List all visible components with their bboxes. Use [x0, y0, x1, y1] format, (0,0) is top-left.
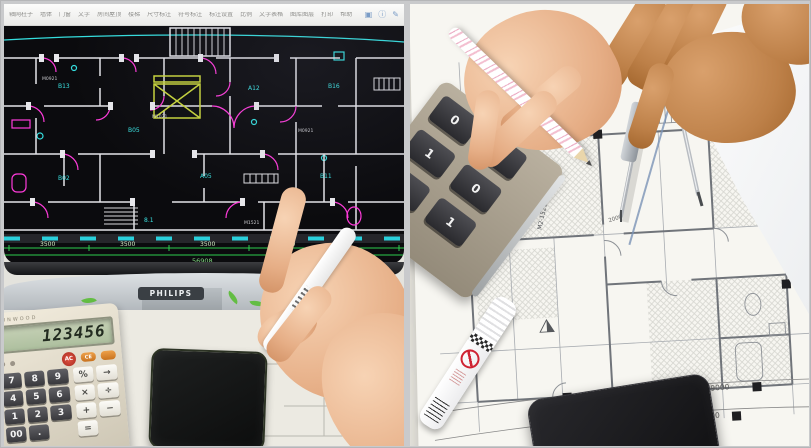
- svg-text:M0921: M0921: [298, 128, 313, 134]
- calc-key: ÷: [98, 382, 120, 399]
- solar-cell: [10, 361, 15, 366]
- cad-menu-item: 门窗: [59, 12, 71, 18]
- calculator: SUNWOOD 123456 AC CE 78945612300. %→×÷+−…: [4, 303, 130, 446]
- calc-key: 5: [26, 388, 47, 405]
- svg-text:B05: B05: [128, 127, 140, 134]
- cad-door-tags: M0921 M1021 M0921 M1521: [42, 76, 313, 226]
- photo-cad-monitor: 轴网柱子墙体门窗文字房间屋顶楼梯尺寸标注符号标注标注设置比例文字表格图库图层打印…: [4, 4, 404, 446]
- calc-key: =: [77, 420, 99, 437]
- smartphone: [148, 348, 267, 446]
- calc-key: 6: [49, 386, 70, 403]
- cad-menu-item: 楼梯: [128, 12, 140, 18]
- calc-key: 2: [27, 406, 48, 423]
- cad-menu-item: 帮助: [340, 12, 352, 18]
- calc-key: −: [99, 400, 121, 417]
- svg-text:M0921: M0921: [42, 76, 57, 82]
- cad-frames: [26, 54, 335, 206]
- cad-rails: [244, 78, 400, 183]
- svg-text:B11: B11: [320, 173, 332, 180]
- workspace-photo-collage: 轴网柱子墙体门窗文字房间屋顶楼梯尺寸标注符号标注标注设置比例文字表格图库图层打印…: [0, 0, 811, 448]
- calculator-keypad: 78945612300. %→×÷+−=: [4, 364, 123, 443]
- calc-key: %: [72, 366, 94, 383]
- cad-menu-item: 墙体: [40, 12, 52, 18]
- cad-elevator: [154, 76, 200, 118]
- calc-key: 7: [4, 372, 22, 389]
- cad-menu-item: 图库图层: [290, 12, 314, 18]
- cad-toolbar: 轴网柱子墙体门窗文字房间屋顶楼梯尺寸标注符号标注标注设置比例文字表格图库图层打印…: [4, 4, 404, 26]
- cad-menu-item: 打印: [321, 12, 333, 18]
- svg-text:A05: A05: [200, 173, 212, 180]
- calculator-display: 123456: [41, 323, 106, 344]
- svg-text:M1021: M1021: [152, 114, 167, 120]
- svg-text:8.1: 8.1: [144, 217, 154, 224]
- cad-menu-item: 文字: [78, 12, 90, 18]
- calc-key: 1: [4, 408, 25, 425]
- cad-menu-list: 轴网柱子墙体门窗文字房间屋顶楼梯尺寸标注符号标注标注设置比例文字表格图库图层打印…: [9, 12, 359, 18]
- calc-operator-keys: %→×÷+−=: [72, 364, 122, 437]
- toolbar-grid-icon: ▣: [365, 11, 373, 19]
- calc-key: 4: [4, 390, 24, 407]
- svg-text:3500: 3500: [40, 241, 55, 248]
- calc-key-orange: [100, 350, 116, 360]
- svg-text:A12: A12: [248, 85, 260, 92]
- cad-cyan-lines: [4, 35, 404, 161]
- svg-text:3500: 3500: [120, 241, 135, 248]
- svg-text:B02: B02: [58, 175, 70, 182]
- calc-key: →: [96, 364, 118, 381]
- cad-menu-item: 比例: [240, 12, 252, 18]
- svg-text:3500: 3500: [200, 241, 215, 248]
- cad-menu-item: 文字表格: [259, 12, 283, 18]
- calc-number-keys: 78945612300.: [4, 368, 73, 443]
- calc-key: 8: [24, 370, 45, 387]
- calc-key: .: [29, 424, 50, 441]
- svg-text:M1521: M1521: [244, 220, 259, 226]
- toolbar-info-icon: ⓘ: [378, 11, 386, 19]
- calc-key: ×: [74, 384, 96, 401]
- photo-blueprint-drafting: 9000 30700 2000 M2-1521B 001041: [410, 4, 809, 446]
- cad-menu-item: 房间屋顶: [97, 12, 121, 18]
- calc-key: 3: [50, 404, 71, 421]
- monitor-brand-label: PHILIPS: [150, 289, 193, 298]
- monitor-brand-badge: PHILIPS: [138, 287, 204, 300]
- svg-text:B13: B13: [58, 83, 70, 90]
- cad-menu-item: 标注设置: [209, 12, 233, 18]
- calc-key-ac: AC: [61, 351, 76, 366]
- cad-menu-item: 尺寸标注: [147, 12, 171, 18]
- cad-menu-item: 符号标注: [178, 12, 202, 18]
- cad-menu-item: 轴网柱子: [9, 12, 33, 18]
- calc-key-ce: CE: [80, 352, 96, 362]
- calc-key: 00: [6, 426, 27, 443]
- calc-key: +: [75, 402, 97, 419]
- calc-key: 9: [47, 368, 68, 385]
- solar-cell: [4, 362, 5, 367]
- toolbar-edit-icon: ✎: [392, 11, 399, 19]
- svg-text:B16: B16: [328, 83, 340, 90]
